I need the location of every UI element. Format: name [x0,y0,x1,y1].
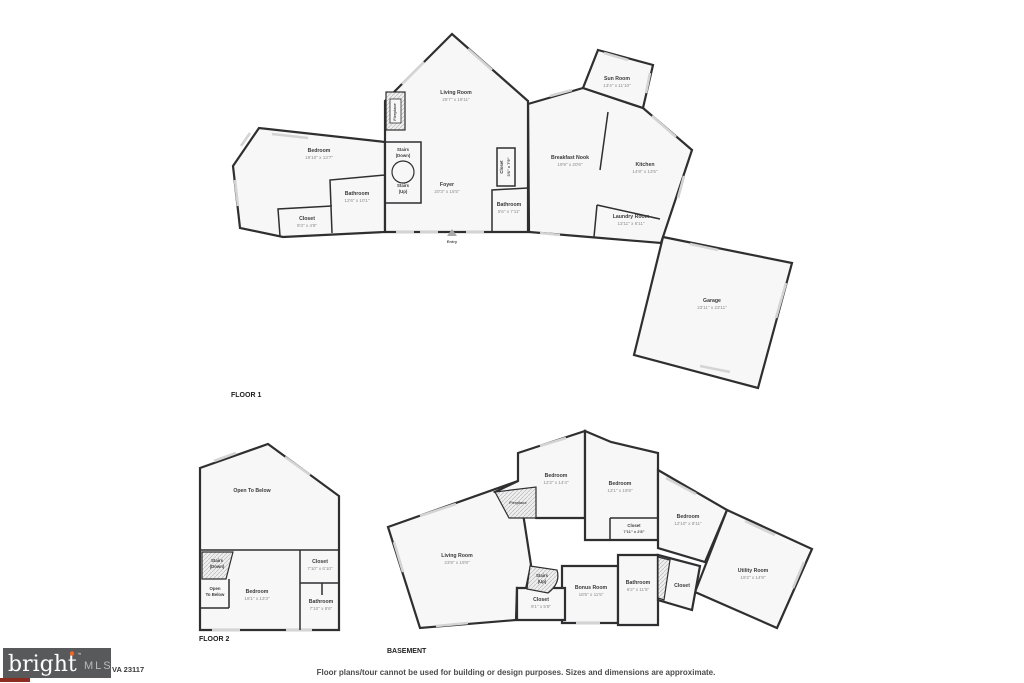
floorplan-image: Living Room 25'7" x 19'11" Sun Room 13'4… [0,0,1024,683]
floor1-foyer-label: Foyer [440,182,454,188]
floor1-closet-left-dims: 9'3" x 4'8" [297,223,317,228]
corner-red-strip [0,678,30,682]
floor2-stairs-down-sub: (Down) [210,564,225,569]
basement-bonus-room-dims: 18'5" x 11'5" [579,592,604,597]
basement-bathroom-dims: 6'2" x 11'5" [627,587,650,592]
floor1-garage-walls [634,237,792,388]
floor2-bedroom-dims: 18'1" x 13'3" [244,596,270,601]
floor1-sun-room-dims: 13'4" x 11'10" [603,83,631,88]
floor1-kitchen-dims: 14'8" x 13'5" [632,169,658,174]
floor1-sun-room-label: Sun Room [604,76,630,82]
floor2-bathroom-label: Bathroom [309,599,334,605]
basement-stairs-up-sub: (Up) [538,579,547,584]
floor1-garage-label: Garage [703,298,721,304]
footer: bright ™ MLS VA 23117 Floor plans/tour c… [0,648,715,682]
floor1-bathroom-mid-dims: 5'6" x 7'11" [498,209,521,214]
floor1-entry-label: Entry [447,239,458,244]
floor2-open-small-label: Open [210,586,221,591]
basement-bedroom-left-dims: 12'2" x 14'4" [543,480,569,485]
floor2-closet-dims: 7'10" x 6'10" [307,566,333,571]
brightmls-logo-spark-icon [70,651,74,655]
floor1-fireplace-label: Fireplace [392,102,397,120]
floor1-stairs-up-label: Stairs [397,183,410,188]
basement-bedroom-mid-dims: 13'1" x 19'8" [607,488,633,493]
floor2-title: FLOOR 2 [199,636,229,643]
basement-bedroom-mid-label: Bedroom [609,481,632,487]
basement-closet-small-dims: 9'1" x 5'8" [531,604,551,609]
floor1-stairs-spiral [392,161,414,183]
basement-plan: Bedroom 12'2" x 14'4" Fireplace Bedroom … [387,431,812,655]
floor1-living-room-label: Living Room [440,90,472,96]
basement-utility-room-label: Utility Room [738,568,769,574]
basement-closet-mid-label: Closet [627,523,641,528]
floor2-stairs-down-label: Stairs [211,558,224,563]
basement-bedroom-right-label: Bedroom [677,514,700,520]
floor2-bathroom-dims: 7'10" x 8'6" [310,606,333,611]
basement-living-room-label: Living Room [441,553,473,559]
basement-closet-mid-dims: 7'11" x 2'8" [623,529,644,534]
floor1-plan: Living Room 25'7" x 19'11" Sun Room 13'4… [231,34,792,399]
floor1-stairs-down-label: Stairs [397,147,410,152]
address-text: VA 23117 [112,665,144,674]
basement-bedroom-right-dims: 12'10" x 8'11" [674,521,702,526]
floor1-bedroom-label: Bedroom [308,148,331,154]
basement-bonus-room-label: Bonus Room [575,585,608,591]
floor1-kitchen-label: Kitchen [635,162,654,168]
brightmls-logo-mls-text: MLS [84,660,113,672]
floor2-closet-label: Closet [312,559,328,565]
floor1-bathroom-left-dims: 12'6" x 10'1" [344,198,370,203]
floor1-laundry-label: Laundry Room [613,214,650,220]
floor2-plan: Open To Below Stairs (Down) Open To Belo… [199,444,339,643]
basement-bathroom-label: Bathroom [626,580,651,586]
floor1-closet-mid-label: Closet [499,160,504,174]
floor1-breakfast-nook-dims: 19'9" x 20'6" [557,162,583,167]
floor1-garage-dims: 23'11" x 23'11" [697,305,727,310]
brightmls-logo-bright-text: bright [8,652,77,677]
basement-closet-small-label: Closet [533,597,549,603]
floor1-laundry-dims: 13'11" x 6'11" [617,221,644,226]
basement-utility-room-dims: 19'2" x 14'9" [740,575,766,580]
floor1-closet-left-label: Closet [299,216,315,222]
disclaimer-text: Floor plans/tour cannot be used for buil… [317,668,716,677]
basement-fireplace-label: Fireplace [509,500,527,505]
floor1-breakfast-nook-label: Breakfast Nook [551,155,589,161]
floor1-bathroom-mid-label: Bathroom [497,202,522,208]
floor1-closet-mid-dims: 3'6" x 7'9" [506,157,511,176]
floor1-stairs-up-sub: (Up) [399,189,408,194]
floor1-nook-kitchen-laundry-walls [528,88,692,243]
floor2-bedroom-label: Bedroom [246,589,269,595]
floor1-living-room-dims: 25'7" x 19'11" [442,97,470,102]
floor1-title: FLOOR 1 [231,392,261,399]
brightmls-logo-tm: ™ [77,652,82,657]
floor1-bathroom-left-label: Bathroom [345,191,370,197]
basement-closet-right-label: Closet [674,583,690,589]
floor2-open-to-below-label: Open To Below [233,488,271,494]
floor2-open-small-sub: To Below [206,592,225,597]
basement-stairs-up-label: Stairs [536,573,549,578]
basement-title: BASEMENT [387,648,427,655]
basement-living-room-dims: 23'8" x 19'8" [444,560,470,565]
basement-bedroom-left-label: Bedroom [545,473,568,479]
floor1-bedroom-dims: 19'10" x 13'7" [305,155,333,160]
floor1-foyer-dims: 20'3" x 15'5" [434,189,460,194]
floor1-stairs-down-sub: (Down) [396,153,411,158]
